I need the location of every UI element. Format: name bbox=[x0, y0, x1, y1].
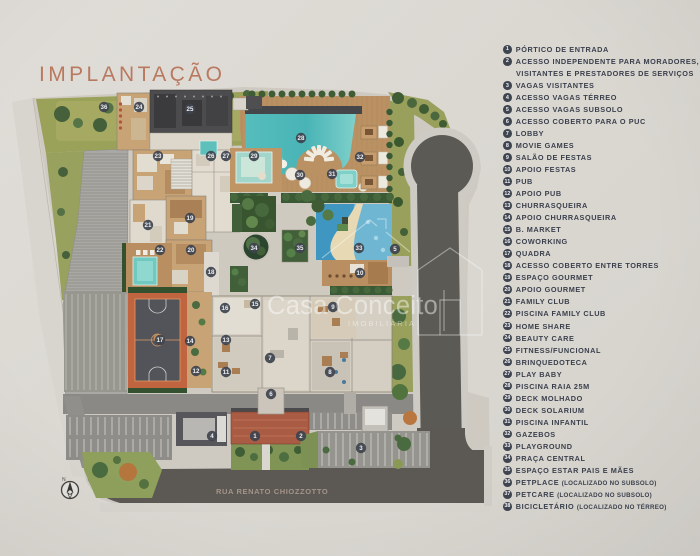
svg-text:13: 13 bbox=[223, 337, 230, 344]
svg-text:21: 21 bbox=[145, 222, 152, 229]
svg-text:15: 15 bbox=[252, 301, 259, 308]
svg-text:19: 19 bbox=[187, 215, 194, 222]
svg-text:1: 1 bbox=[253, 433, 257, 440]
svg-text:6: 6 bbox=[269, 391, 273, 398]
svg-text:25: 25 bbox=[187, 106, 194, 113]
svg-text:8: 8 bbox=[328, 369, 332, 376]
svg-text:5: 5 bbox=[393, 246, 397, 253]
svg-text:30: 30 bbox=[297, 172, 304, 179]
svg-text:24: 24 bbox=[136, 104, 143, 111]
svg-text:20: 20 bbox=[188, 247, 195, 254]
svg-text:35: 35 bbox=[297, 245, 304, 252]
svg-text:12: 12 bbox=[193, 368, 200, 375]
svg-text:22: 22 bbox=[157, 247, 164, 254]
svg-text:3: 3 bbox=[359, 445, 363, 452]
svg-text:2: 2 bbox=[299, 433, 303, 440]
svg-text:4: 4 bbox=[210, 433, 214, 440]
svg-text:14: 14 bbox=[187, 338, 194, 345]
svg-text:11: 11 bbox=[223, 369, 230, 376]
svg-text:18: 18 bbox=[208, 269, 215, 276]
svg-text:7: 7 bbox=[268, 355, 272, 362]
svg-text:26: 26 bbox=[208, 153, 215, 160]
svg-text:10: 10 bbox=[357, 270, 364, 277]
svg-text:32: 32 bbox=[357, 154, 364, 161]
svg-text:36: 36 bbox=[101, 104, 108, 111]
svg-text:23: 23 bbox=[155, 153, 162, 160]
svg-text:16: 16 bbox=[222, 305, 229, 312]
svg-text:17: 17 bbox=[157, 337, 164, 344]
svg-text:33: 33 bbox=[356, 245, 363, 252]
svg-text:31: 31 bbox=[329, 171, 336, 178]
svg-text:29: 29 bbox=[251, 153, 258, 160]
svg-text:27: 27 bbox=[223, 153, 230, 160]
svg-text:34: 34 bbox=[251, 245, 258, 252]
svg-text:28: 28 bbox=[298, 135, 305, 142]
svg-text:N: N bbox=[62, 477, 66, 483]
